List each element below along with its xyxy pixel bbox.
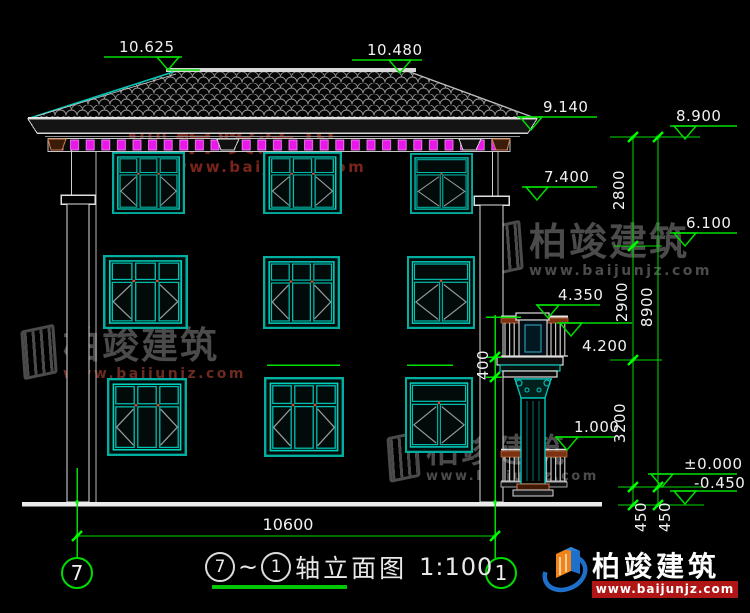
dim-400: 400 bbox=[474, 325, 492, 405]
cad-elevation-drawing: 柏竣建筑 www.baijunjz.com 柏竣建筑 www.baijunjz.… bbox=[0, 0, 750, 613]
marker-minus-0.450 bbox=[670, 491, 737, 504]
roof-ridge bbox=[166, 68, 416, 72]
title-scale: 1:100 bbox=[419, 553, 493, 581]
elevation-label-6100: 6.100 bbox=[686, 214, 731, 232]
brand-logo-text: 柏竣建筑 bbox=[592, 545, 720, 585]
marker-1.000 bbox=[556, 437, 615, 450]
elevation-label-ridge-right: 10.480 bbox=[367, 41, 423, 59]
column-capital bbox=[515, 379, 551, 398]
window-2f-right bbox=[408, 257, 474, 328]
drawing-title: 7 ~ 1 轴立面图 1:100 bbox=[205, 549, 493, 585]
marker-7.400 bbox=[522, 187, 597, 200]
axis-number-right: 1 bbox=[490, 561, 512, 585]
brand-logo-icon bbox=[541, 541, 591, 599]
ground-line bbox=[22, 502, 602, 507]
title-name: 轴立面图 bbox=[295, 549, 407, 585]
corner-column-left bbox=[61, 150, 95, 502]
title-underline bbox=[212, 585, 347, 589]
hipped-roof bbox=[30, 68, 535, 118]
axis-number-left: 7 bbox=[66, 561, 88, 585]
brand-logo-url: www.baijunjz.com bbox=[592, 581, 738, 598]
dim-8900: 8900 bbox=[638, 267, 656, 347]
elevation-label-zero: ±0.000 bbox=[684, 455, 743, 473]
elevation-label-balcony-rail: 4.350 bbox=[558, 286, 603, 304]
title-separator: ~ bbox=[238, 553, 258, 581]
eave-cornice bbox=[28, 118, 537, 152]
dim-3200: 3200 bbox=[611, 383, 629, 463]
marker-6.100 bbox=[670, 233, 737, 246]
window-3f-middle bbox=[264, 153, 341, 213]
dim-2800: 2800 bbox=[610, 150, 628, 230]
elevation-label-wall-top: 8.900 bbox=[676, 107, 721, 125]
elevation-label-eave: 9.140 bbox=[543, 98, 588, 116]
window-1f-middle bbox=[265, 378, 343, 456]
windows bbox=[104, 153, 474, 456]
window-1f-left bbox=[108, 379, 186, 455]
elevation-label-site: -0.450 bbox=[694, 474, 745, 492]
title-axis-end: 1 bbox=[261, 552, 291, 582]
elevation-label-ridge-left: 10.625 bbox=[119, 38, 175, 56]
window-2f-left bbox=[104, 256, 186, 328]
dim-total-width: 10600 bbox=[248, 515, 328, 534]
column-base bbox=[517, 484, 549, 490]
window-3f-left bbox=[113, 153, 184, 213]
balcony-balusters-left bbox=[502, 323, 518, 356]
dim-2900: 2900 bbox=[613, 262, 631, 342]
window-3f-right bbox=[411, 154, 472, 213]
balcony-slab bbox=[497, 357, 563, 365]
window-2f-middle bbox=[264, 257, 339, 328]
elevation-label-floor3: 7.400 bbox=[544, 168, 589, 186]
title-axis-start: 7 bbox=[205, 552, 235, 582]
window-1f-right bbox=[406, 378, 472, 452]
